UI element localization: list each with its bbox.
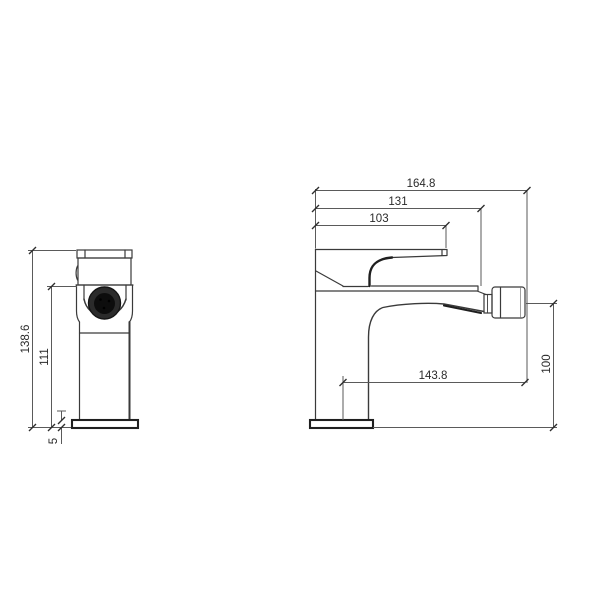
front-handle-block (78, 258, 131, 285)
aerator-dot (103, 307, 106, 310)
dim-label-spout-height: 100 (541, 354, 553, 373)
nozzle-aerator (492, 287, 525, 318)
dim-label-body-depth: 131 (388, 196, 407, 208)
drawing-sheet: 138.6 111 5 (0, 0, 600, 600)
faucet-technical-drawing: 138.6 111 5 (0, 0, 600, 600)
dim-label-base-thickness: 5 (48, 438, 60, 444)
nozzle-collar (484, 295, 492, 314)
side-spout-profile (369, 303, 485, 420)
side-body-top (316, 286, 487, 295)
front-base-plate (72, 420, 138, 428)
side-lever (316, 250, 448, 258)
side-base-plate (310, 420, 373, 428)
aerator-dot (99, 298, 102, 301)
aerator-face (94, 293, 115, 314)
dim-label-spout-reach: 143.8 (419, 370, 448, 382)
dim-label-handle-depth: 103 (369, 213, 388, 225)
dim-label-body-height: 111 (39, 348, 51, 365)
side-lever-neck (370, 258, 393, 287)
side-view: 164.8 131 103 143.8 100 (310, 178, 557, 431)
dim-label-total-depth: 164.8 (407, 178, 436, 190)
front-handle-bump (76, 266, 77, 280)
front-lever-cap-ticks (85, 250, 125, 258)
front-view-dimensions: 138.6 111 5 (20, 247, 77, 444)
dim-label-total-height: 138.6 (20, 325, 32, 354)
aerator-dot (108, 300, 111, 303)
side-top-chamfer (316, 271, 343, 286)
front-view: 138.6 111 5 (20, 247, 138, 444)
